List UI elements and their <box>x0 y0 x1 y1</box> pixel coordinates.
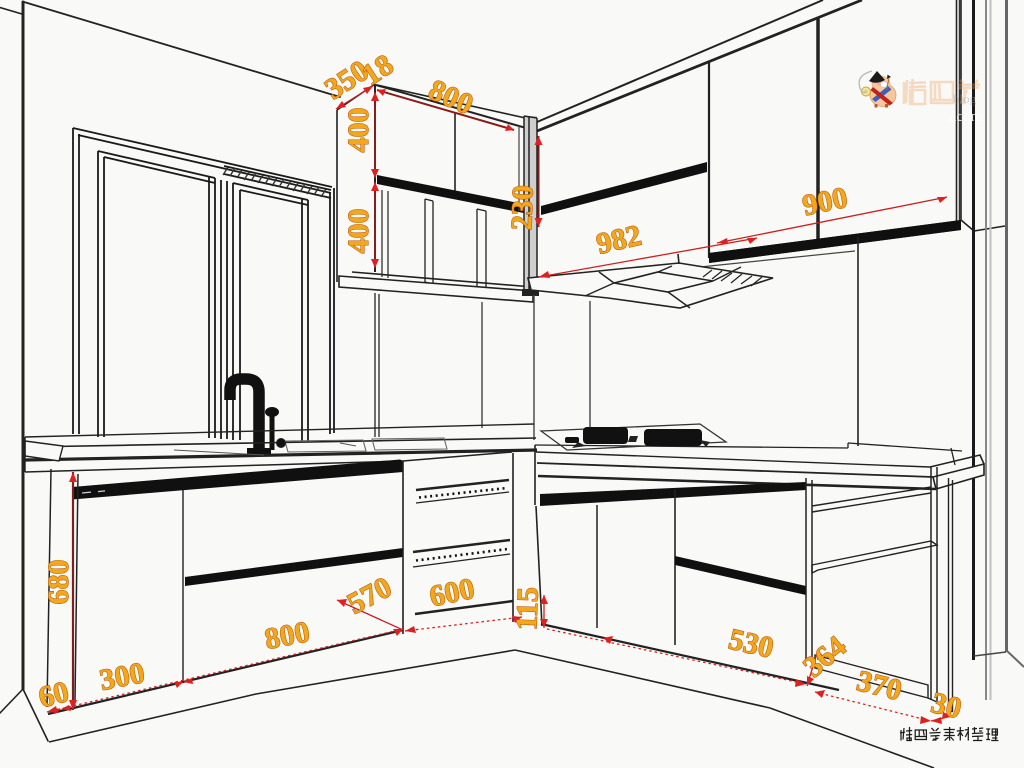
svg-text:dcom: dcom <box>949 109 983 125</box>
svg-text:230: 230 <box>505 185 540 231</box>
svg-text:680: 680 <box>42 560 75 605</box>
svg-text:400: 400 <box>342 108 375 153</box>
svg-text:115: 115 <box>510 586 544 630</box>
svg-text:400: 400 <box>342 209 375 254</box>
svg-text:blog: blog <box>953 91 977 106</box>
